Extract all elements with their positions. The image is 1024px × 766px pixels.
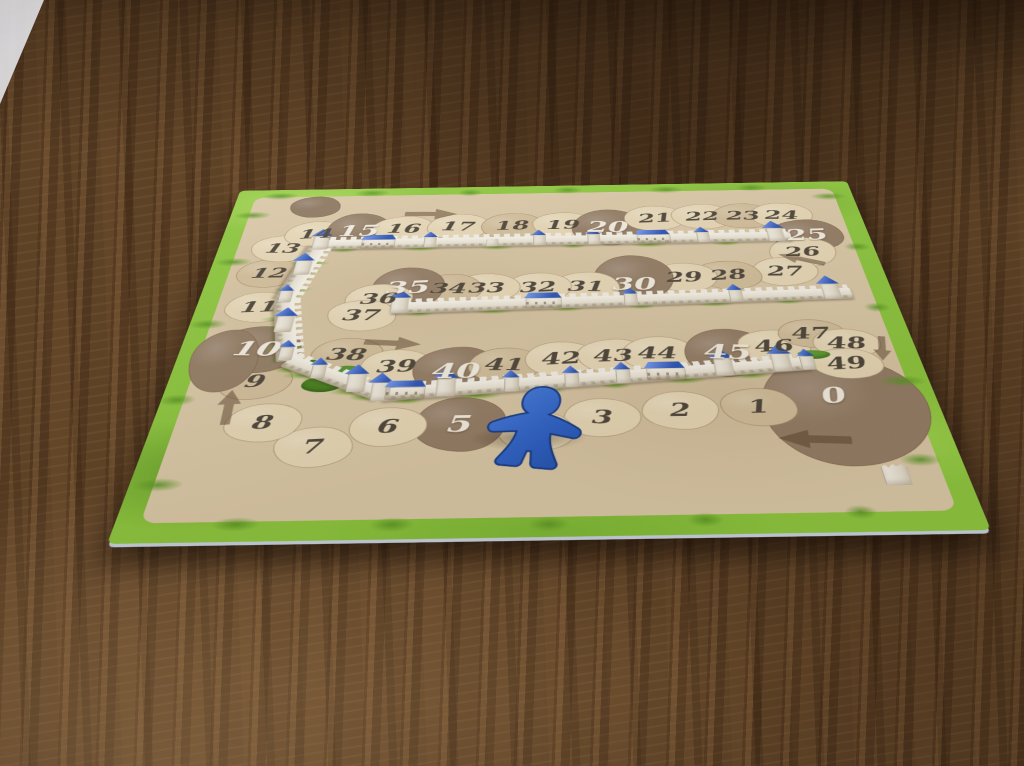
space-number: 43 (592, 347, 634, 364)
tower-body (623, 293, 638, 305)
space-number: 10 (230, 339, 284, 359)
light-spot (0, 0, 44, 104)
tower-body (820, 283, 842, 298)
tower-roof (278, 285, 296, 291)
tower-roof (724, 284, 742, 290)
tower-roof (423, 232, 439, 238)
tower-body (587, 234, 600, 244)
space-number: 33 (468, 281, 505, 296)
space-number: 34 (429, 281, 468, 295)
tower-body (292, 260, 312, 274)
castle-tower-icon (533, 230, 546, 246)
castle-tower-icon (384, 380, 426, 400)
tower-body (770, 354, 793, 372)
space-number: 42 (540, 349, 582, 367)
space-number: 45 (703, 342, 753, 362)
space-number: 22 (684, 210, 721, 223)
tower-body (384, 387, 426, 400)
castle-tower-icon (564, 365, 580, 387)
space-number: 1 (746, 397, 772, 416)
space-number: 41 (484, 356, 525, 373)
score-track-board: 0123567891011121314151617181920212223242… (107, 181, 991, 544)
tower-body (696, 232, 711, 242)
space-number: 18 (495, 219, 530, 232)
space-number: 21 (637, 212, 674, 225)
space-number: 16 (385, 223, 421, 235)
grass-tuft (528, 517, 570, 532)
space-number: 40 (431, 361, 481, 382)
tower-body (646, 368, 687, 381)
tower-body (799, 356, 817, 370)
space-number: 48 (825, 335, 869, 351)
space-number: 19 (546, 219, 581, 232)
tower-body (765, 228, 785, 241)
tower-body (533, 235, 546, 246)
space-number: 13 (263, 242, 302, 255)
grass-tuft (368, 517, 415, 532)
tower-body (636, 234, 671, 243)
tower-body (564, 373, 579, 387)
tower-body (361, 239, 396, 248)
space-number: 14 (298, 227, 334, 241)
space-number: 49 (823, 354, 870, 372)
castle-tower-icon (423, 232, 438, 248)
space-number: 7 (300, 437, 324, 458)
space-number: 26 (783, 245, 823, 258)
space-number: 38 (325, 346, 369, 363)
space-number: 28 (708, 267, 749, 282)
tower-roof (692, 227, 708, 233)
space-number: 25 (783, 227, 831, 243)
space-number: 11 (238, 299, 279, 315)
tower-roof (385, 380, 427, 387)
space-number: 30 (611, 275, 657, 292)
grass-tuft (686, 512, 726, 527)
tower-body (277, 291, 294, 303)
space-number: 5 (446, 412, 473, 435)
tower-roof (531, 230, 546, 236)
space-number: 32 (519, 279, 557, 294)
tower-body (486, 238, 499, 246)
tower-body (345, 374, 367, 393)
space-number: 6 (376, 417, 401, 436)
castle-tower-icon (645, 361, 687, 380)
tower-roof (634, 229, 670, 234)
space-number: 8 (250, 413, 276, 432)
board-perspective-wrap: 0123567891011121314151617181920212223242… (107, 181, 991, 544)
tower-body (526, 298, 563, 309)
tower-body (310, 365, 328, 379)
space-number: 17 (440, 220, 476, 232)
space-number: 36 (359, 291, 398, 306)
tower-body (728, 290, 744, 302)
castle-tower-icon (486, 238, 499, 246)
space-number: 46 (752, 337, 796, 354)
space-number: 44 (637, 345, 678, 361)
space-number: 27 (765, 264, 805, 278)
space-number: 15 (336, 223, 380, 239)
space-number: 2 (669, 401, 692, 419)
tower-body (615, 369, 631, 383)
space-number: 12 (249, 266, 289, 280)
space-number: 3 (592, 408, 613, 427)
space-number: 37 (341, 308, 382, 323)
space-number: 31 (567, 279, 604, 293)
space-number: 20 (587, 220, 629, 235)
table-photo-scene: 0123567891011121314151617181920212223242… (0, 0, 1024, 766)
space-number: 29 (665, 270, 704, 285)
space-number: 39 (376, 357, 417, 375)
tower-body (273, 316, 295, 332)
space-number: 23 (725, 210, 762, 222)
tower-body (423, 237, 437, 248)
space-number: 24 (763, 209, 800, 221)
castle-tower-icon (636, 229, 672, 243)
